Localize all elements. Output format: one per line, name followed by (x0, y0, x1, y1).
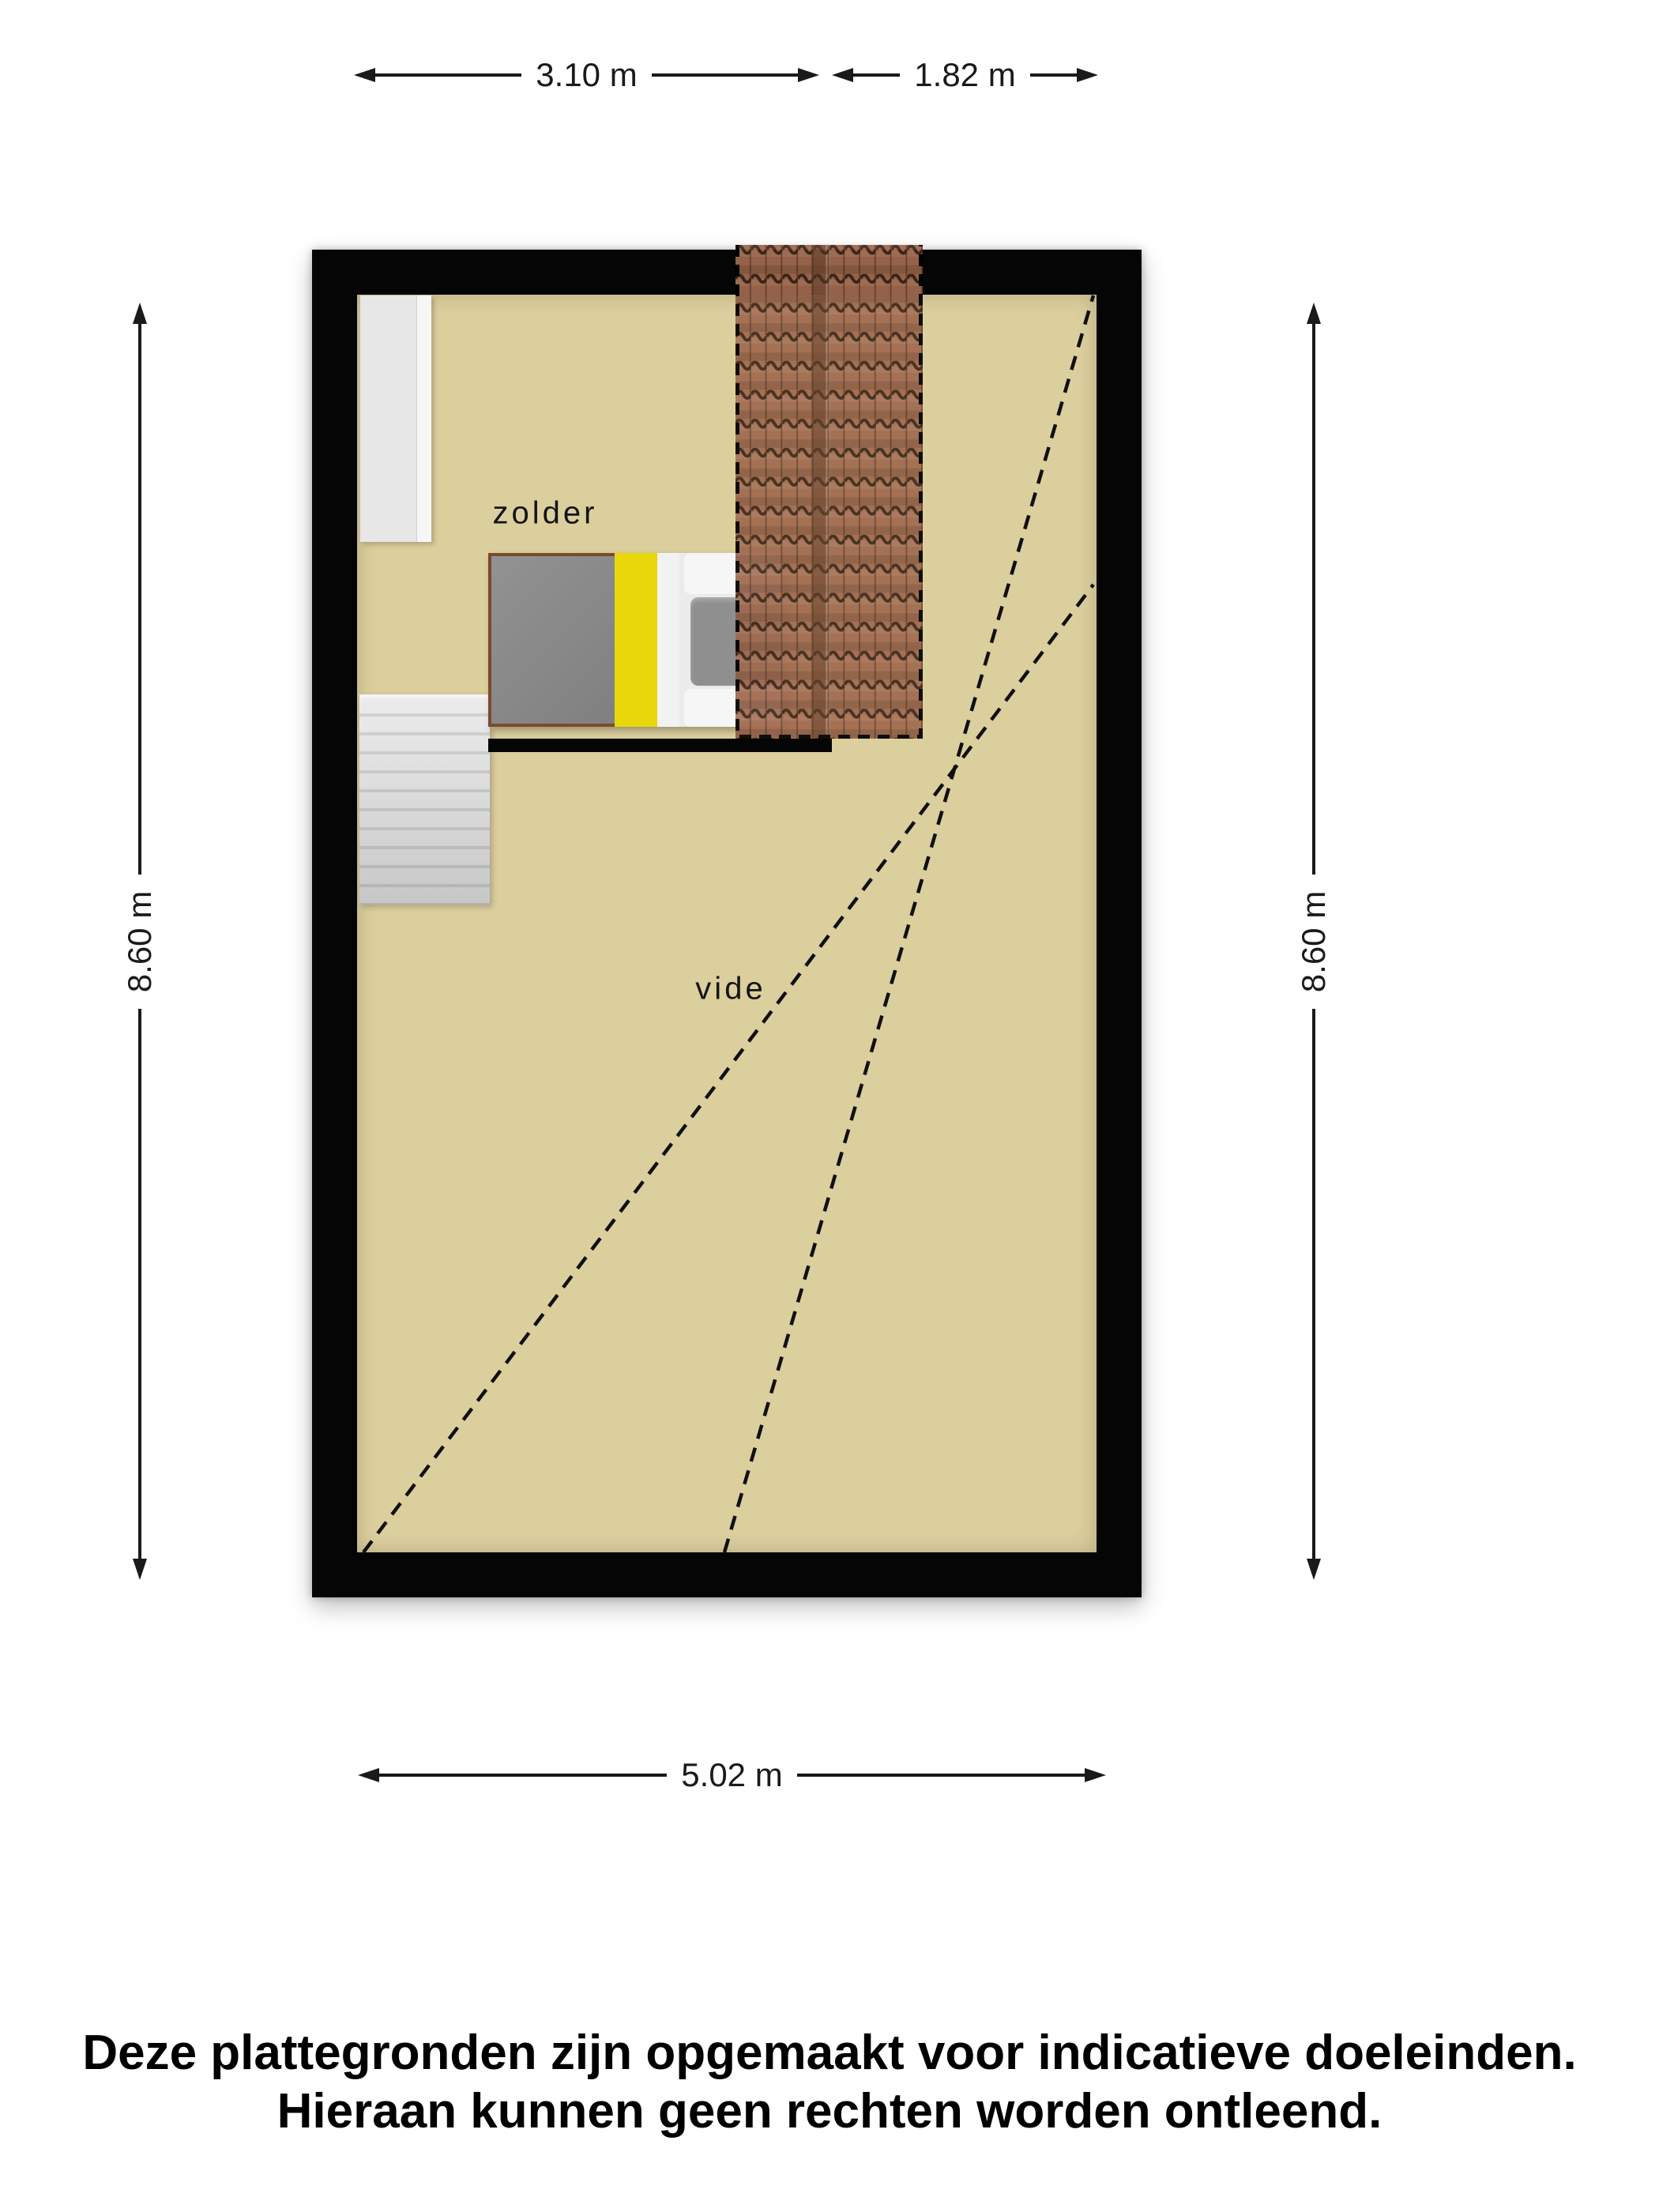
dimension-line (652, 73, 798, 77)
arrow-up-icon (133, 303, 147, 324)
dimension-label-box: 8.60 m (1263, 875, 1364, 1009)
floor-plan: zolder vide (312, 250, 1142, 1597)
dimension-line (138, 324, 141, 875)
dimension-bottom-width: 5.02 m (358, 1756, 1106, 1794)
arrow-down-icon (133, 1559, 147, 1580)
dimension-label-box: 8.60 m (89, 875, 190, 1009)
arrow-right-icon (1077, 68, 1098, 82)
roof-section (735, 245, 923, 739)
roof-tiles-icon (735, 245, 923, 739)
arrow-left-icon (354, 68, 375, 82)
dimension-side-height-right: 8.60 m (1255, 303, 1373, 1580)
dimension-line (1312, 324, 1315, 875)
disclaimer-line-1: Deze plattegronden zijn opgemaakt voor i… (0, 2024, 1659, 2082)
dimension-line (379, 1774, 667, 1777)
vide-label: vide (695, 972, 766, 1007)
dimension-label: 8.60 m (121, 890, 159, 991)
dimension-label: 5.02 m (667, 1756, 796, 1794)
floorplan-page: 3.10 m 1.82 m 8.60 m 8.60 m 5.02 m (0, 0, 1659, 2212)
dimension-line (375, 73, 521, 77)
arrow-left-icon (832, 68, 853, 82)
arrow-left-icon (358, 1768, 379, 1782)
arrow-right-icon (1085, 1768, 1106, 1782)
arrow-down-icon (1307, 1559, 1321, 1580)
dimension-side-height-left: 8.60 m (81, 303, 199, 1580)
dimension-line (1312, 1009, 1315, 1559)
zolder-label: zolder (493, 496, 598, 532)
dimension-top-width-left: 3.10 m (354, 56, 819, 94)
dimension-line (1030, 73, 1077, 77)
dimension-line (138, 1009, 141, 1559)
disclaimer-line-2: Hieraan kunnen geen rechten worden ontle… (0, 2082, 1659, 2141)
dimension-label: 1.82 m (900, 56, 1029, 94)
roof-slope-lines (312, 250, 1142, 1597)
arrow-right-icon (798, 68, 819, 82)
arrow-up-icon (1307, 303, 1321, 324)
disclaimer: Deze plattegronden zijn opgemaakt voor i… (0, 2024, 1659, 2141)
dimension-label: 8.60 m (1295, 890, 1333, 991)
dimension-line (853, 73, 900, 77)
roof-slope-line (363, 585, 1093, 1552)
dimension-line (797, 1774, 1085, 1777)
dimension-label: 3.10 m (521, 56, 651, 94)
dimension-top-width-right: 1.82 m (832, 56, 1098, 94)
